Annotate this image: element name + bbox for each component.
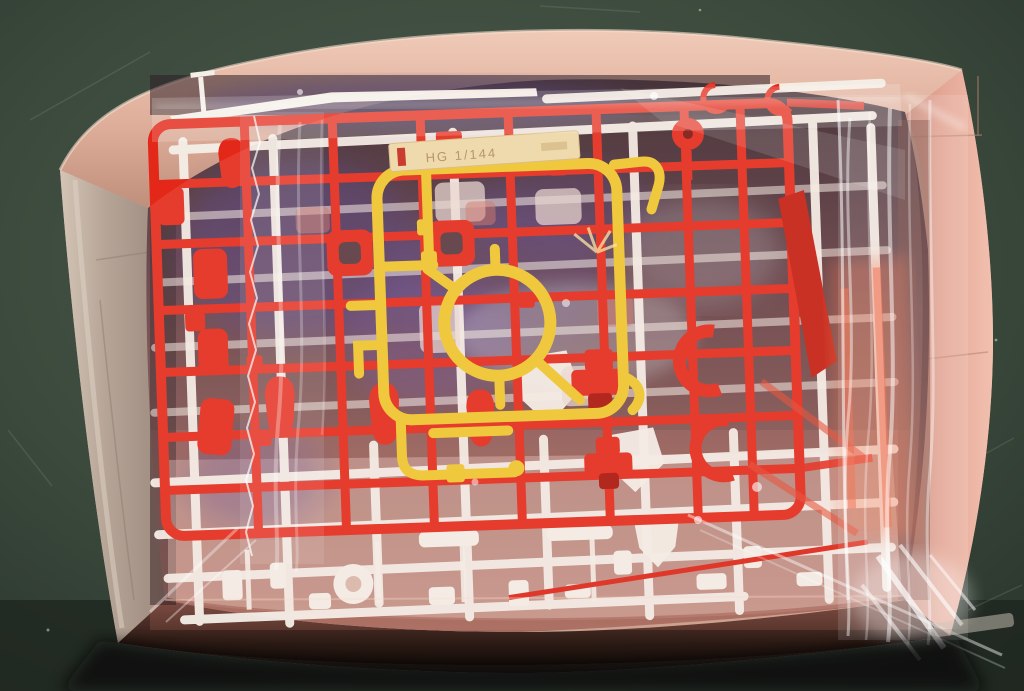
- bag-left-seam: [240, 112, 325, 572]
- plastic-bag: [146, 79, 1005, 668]
- photo-stage: HG 1/144: [0, 0, 1024, 691]
- kit-box-photo: HG 1/144: [0, 0, 1024, 691]
